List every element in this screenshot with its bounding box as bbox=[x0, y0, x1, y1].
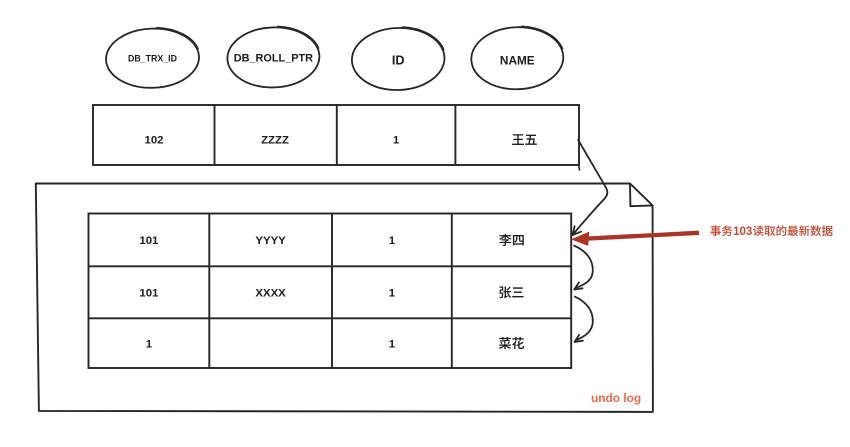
svg-text:101: 101 bbox=[139, 288, 159, 300]
svg-text:ZZZZ: ZZZZ bbox=[261, 134, 289, 146]
svg-text:DB_TRX_ID: DB_TRX_ID bbox=[128, 54, 177, 64]
svg-text:103: 103 bbox=[733, 226, 752, 238]
svg-text:YYYY: YYYY bbox=[255, 235, 286, 247]
svg-text:1: 1 bbox=[389, 288, 396, 300]
svg-text:XXXX: XXXX bbox=[255, 288, 286, 300]
svg-text:102: 102 bbox=[144, 134, 163, 146]
svg-text:1: 1 bbox=[389, 338, 396, 350]
svg-text:1: 1 bbox=[146, 338, 153, 350]
svg-text:undo log: undo log bbox=[591, 391, 641, 405]
svg-text:ID: ID bbox=[392, 54, 405, 68]
svg-text:NAME: NAME bbox=[500, 53, 535, 67]
svg-text:DB_ROLL_PTR: DB_ROLL_PTR bbox=[234, 52, 313, 64]
svg-text:1: 1 bbox=[393, 134, 400, 146]
svg-text:101: 101 bbox=[139, 235, 159, 247]
svg-text:1: 1 bbox=[389, 235, 396, 247]
